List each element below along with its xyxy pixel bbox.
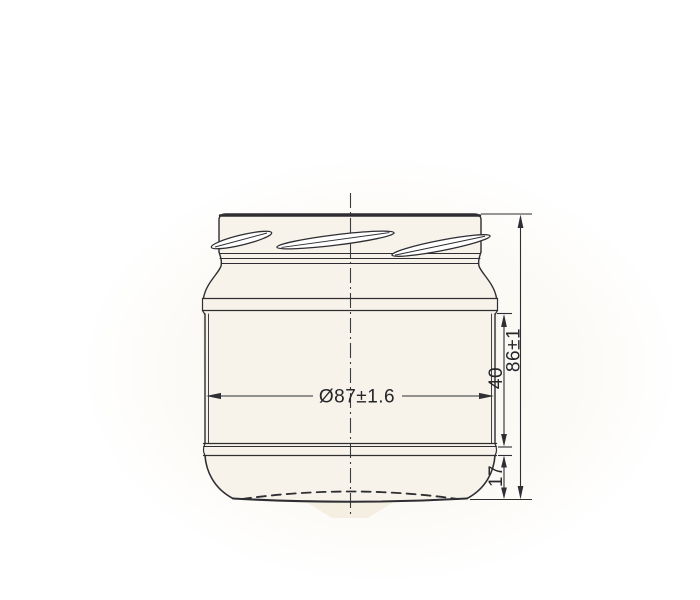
- dim-label-total-height: 86±1: [504, 328, 525, 372]
- dim-label-base-height: 17: [486, 465, 507, 487]
- dim-label-diameter: Ø87±1.6: [319, 387, 395, 408]
- jar-technical-drawing: Ø87±1.6 40 17 86±1: [0, 0, 700, 600]
- drawing-page: Ø87±1.6 40 17 86±1: [0, 0, 700, 600]
